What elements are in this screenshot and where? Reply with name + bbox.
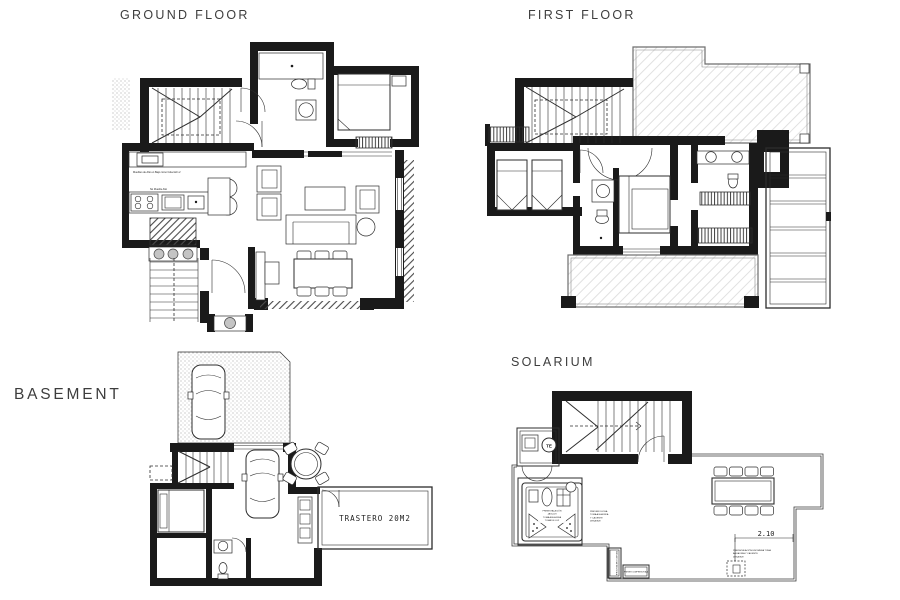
- ground-staircase: [152, 88, 232, 143]
- kitchen-island: [208, 178, 237, 215]
- tv: [265, 262, 279, 284]
- single-bed: [497, 160, 527, 210]
- svg-text:PREVER COMPRESOR A/A: PREVER COMPRESOR A/A: [624, 571, 649, 574]
- first-floor-plan: [485, 47, 831, 308]
- ground-entry-porch: [149, 218, 246, 331]
- coffee-table: [305, 187, 345, 210]
- garage-counter: [298, 497, 312, 543]
- svg-text:DESAGÜE: DESAGÜE: [733, 555, 744, 558]
- first-bathroom: [580, 150, 614, 239]
- dimension-label: 2.10: [758, 530, 775, 538]
- ac-compressor-bottom: PREVER COMPRESOR A/A: [623, 565, 649, 578]
- first-floor-title: FIRST FLOOR: [528, 8, 636, 22]
- solarium-stair-enclosure: [552, 391, 692, 464]
- garden-strip: [112, 78, 130, 130]
- jacuzzi-note-line: PREINSTALACIÓN: [543, 510, 562, 513]
- jacuzzi-note-line: TOMA DE LUZ: [545, 519, 560, 522]
- armchair: [356, 186, 379, 213]
- toilet-icon: [596, 210, 609, 224]
- dining-table: [712, 478, 774, 504]
- ac-compressor-side: PREVER COMPRESOR A/A: [608, 548, 621, 578]
- master-bedroom: [619, 176, 670, 233]
- jacuzzi-note-line: TOMA AGUA FRIA: [543, 516, 562, 519]
- basement-bathroom: [214, 538, 246, 579]
- bed: [338, 74, 390, 130]
- bed: [158, 490, 204, 532]
- solarium-plan: TE PREINSTALACIÓN JACUZZI TOMA AGUA FRIA…: [513, 391, 822, 580]
- sink-icon: [592, 180, 614, 202]
- sink-icon: [214, 540, 232, 553]
- sink-icon: [732, 152, 743, 163]
- entry-door: [212, 260, 245, 293]
- solarium-dining-set: [712, 467, 774, 515]
- tv-unit: [256, 252, 265, 300]
- svg-text:PREVER DUCHA: PREVER DUCHA: [590, 510, 608, 513]
- svg-text:PREINSTALACIÓN ENCIMERA TOMA: PREINSTALACIÓN ENCIMERA TOMA: [733, 549, 771, 552]
- jacuzzi: PREINSTALACIÓN JACUZZI TOMA AGUA FRIA TO…: [518, 478, 582, 545]
- side-terrace-strip: [404, 160, 414, 302]
- basement-title: BASEMENT: [14, 386, 122, 403]
- entry-steps: [150, 258, 198, 322]
- toilet-icon: [292, 79, 316, 89]
- planter-small: [214, 316, 246, 331]
- svg-text:PREVER COMPRESOR A/A: PREVER COMPRESOR A/A: [615, 551, 618, 576]
- svg-text:Y CALIENTE: Y CALIENTE: [590, 516, 603, 519]
- ground-bathroom: [259, 53, 323, 120]
- first-terrace: [561, 255, 759, 308]
- shower-note: PREVER DUCHA TOMA AGUA FRIA Y CALIENTE D…: [590, 510, 609, 523]
- storage-room: TRASTERO 20M2: [318, 487, 432, 549]
- svg-text:DESAGÜE: DESAGÜE: [590, 520, 601, 523]
- ground-living-room: [256, 166, 379, 300]
- jacuzzi-note-line: JACUZZI: [548, 513, 557, 516]
- drain-dot: [291, 65, 294, 68]
- double-bed: [619, 176, 670, 233]
- svg-text:TOMA AGUA FRIA: TOMA AGUA FRIA: [590, 513, 609, 516]
- single-bed: [532, 160, 562, 210]
- svg-text:AGUA FRIA Y CALIENTE: AGUA FRIA Y CALIENTE: [733, 552, 758, 555]
- ground-floor-plan: Muebles de Alto en Bajo como Colección 2…: [112, 42, 419, 332]
- solarium-title: SOLARIUM: [511, 355, 595, 369]
- kitchen-note-counter: No Mueble Alto: [150, 188, 168, 191]
- ground-bedroom: [338, 74, 406, 148]
- storage-room-label: TRASTERO 20M2: [339, 514, 411, 523]
- basement-plan: TRASTERO 20M2: [150, 352, 432, 586]
- roof-terrace: [633, 47, 810, 143]
- armchair: [257, 166, 281, 192]
- counter-note: PREINSTALACIÓN ENCIMERA TOMA AGUA FRIA Y…: [727, 549, 771, 576]
- closet: [356, 137, 392, 148]
- basement-staircase: [150, 451, 228, 483]
- floorplan-drawing: GROUND FLOOR FIRST FLOOR BASEMENT SOLARI…: [0, 0, 900, 600]
- wardrobe: [698, 228, 752, 243]
- sink-icon: [296, 100, 316, 120]
- kitchen-sink-icon: [162, 195, 184, 210]
- ground-kitchen: Muebles de Alto en Bajo como Colección 2…: [129, 152, 246, 215]
- porch-strip: [260, 301, 360, 309]
- dining-table: [294, 259, 352, 288]
- wardrobe: [700, 192, 750, 205]
- side-table: [357, 218, 375, 236]
- first-staircase: [526, 87, 624, 143]
- ensuite-bathroom: [697, 151, 752, 243]
- floorplan-sheet: GROUND FLOOR FIRST FLOOR BASEMENT SOLARI…: [0, 0, 900, 600]
- toilet-icon: [728, 174, 738, 188]
- stove-icon: [131, 194, 158, 211]
- kitchen-note-upper: Muebles de Alto en Bajo como Colección 2: [133, 171, 181, 174]
- toilet-icon: [218, 563, 228, 580]
- planter: [149, 247, 197, 261]
- driveway: [178, 352, 290, 443]
- car-icon: [188, 365, 229, 439]
- basement-bedroom: [158, 490, 204, 532]
- dining-set: [294, 251, 352, 296]
- armchair: [257, 194, 281, 220]
- sink-icon: [706, 152, 717, 163]
- window-band: [489, 127, 529, 142]
- sofa: [286, 215, 356, 244]
- ground-floor-title: GROUND FLOOR: [120, 8, 250, 22]
- twin-bedroom: [497, 160, 562, 210]
- hall-double-doors: [588, 148, 652, 180]
- te-label: TE: [546, 443, 552, 448]
- garage-car-icon: [242, 450, 283, 518]
